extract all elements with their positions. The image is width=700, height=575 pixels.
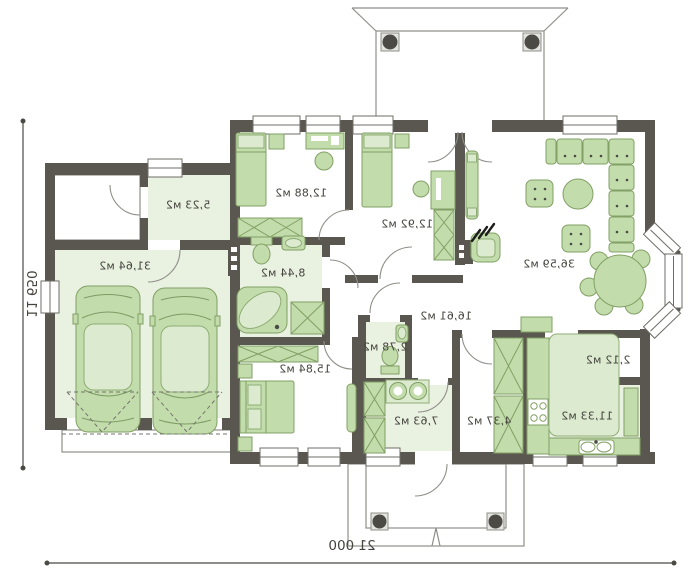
nightstand-icon — [395, 134, 409, 148]
wardrobe-room-furniture — [494, 338, 523, 453]
column-icon — [371, 513, 388, 530]
porch-left — [48, 175, 140, 240]
desk-icon — [431, 171, 455, 209]
desk-icon — [306, 133, 344, 149]
room-label-wc: 2,78 м2 — [363, 341, 408, 354]
room-label-bedroom-2: 12,92 м2 — [381, 218, 433, 231]
room-label-bedroom-3: 15,84 м2 — [279, 363, 331, 376]
wardrobe-icon — [434, 210, 454, 260]
room-label-laundry: 7,63 м2 — [394, 415, 439, 428]
wardrobe-icon — [364, 382, 385, 416]
column-icon — [523, 33, 541, 51]
wardrobe-icon — [238, 218, 302, 237]
room-label-vestibule: 5,23 м2 — [166, 199, 211, 212]
double-sink-icon — [386, 380, 429, 403]
nightstand-icon — [269, 134, 284, 149]
bed-icon — [236, 133, 266, 206]
room-label-garage: 31,64 м2 — [99, 260, 151, 273]
washbasin-icon — [396, 325, 408, 342]
hall-cabinet-icon — [466, 151, 478, 219]
porch-bottom — [348, 464, 524, 546]
floor-plan-drawing — [0, 0, 700, 575]
nightstand-icon — [238, 437, 252, 451]
toilet-icon — [251, 237, 272, 264]
stove-icon — [528, 399, 548, 425]
bedroom-1-furniture — [236, 133, 344, 237]
dimension-width-label: 21 000 — [328, 538, 375, 554]
terrace-top — [352, 8, 568, 120]
dimension-height-label: 11 650 — [23, 270, 39, 317]
column-icon — [381, 33, 399, 51]
radiator-icon — [347, 384, 356, 432]
bathtub-icon — [232, 284, 287, 336]
kitchen-counter — [527, 338, 549, 454]
chair-icon — [315, 152, 333, 170]
coffee-table-icon — [563, 179, 593, 209]
living-room-furniture — [521, 139, 650, 332]
room-label-living: 36,59 м2 — [523, 258, 575, 271]
car-icon — [150, 288, 220, 434]
room-label-bedroom-1: 12,88 м2 — [275, 187, 327, 200]
kitchen-counter — [624, 388, 638, 436]
chair-icon — [413, 181, 429, 197]
room-label-hall: 16,61 м2 — [420, 310, 472, 323]
wardrobe-icon — [238, 346, 318, 362]
chimney — [455, 240, 473, 264]
room-label-kitchen: 11,33 м2 — [561, 410, 613, 423]
kitchen-sink-icon — [579, 440, 614, 454]
wardrobe-icon — [494, 338, 523, 394]
room-label-pantry: 2,12 м2 — [586, 354, 631, 367]
vent-shaft — [228, 242, 240, 276]
washbasin-icon — [282, 236, 305, 250]
bed-icon — [240, 381, 294, 433]
dining-table-icon — [580, 250, 650, 315]
bed-icon — [362, 133, 392, 207]
entrance-door-opening — [415, 451, 452, 465]
nightstand-icon — [238, 364, 252, 378]
armchair-icon — [526, 180, 553, 207]
terrace-door-opening — [428, 119, 492, 133]
shower-icon — [291, 302, 324, 334]
sideboard-icon — [521, 317, 552, 332]
room-label-bathroom: 8,44 м2 — [261, 267, 306, 280]
fireplace-icon — [471, 224, 500, 262]
room-label-wardrobe: 4,37 м2 — [467, 415, 512, 428]
armchair-icon — [562, 225, 590, 252]
bedroom-2-furniture — [362, 133, 455, 260]
floor-plan: 31,64 м2 5,23 м2 12,88 м2 12,92 м2 36,59… — [0, 0, 700, 575]
column-icon — [487, 513, 504, 530]
wardrobe-icon — [364, 418, 385, 453]
